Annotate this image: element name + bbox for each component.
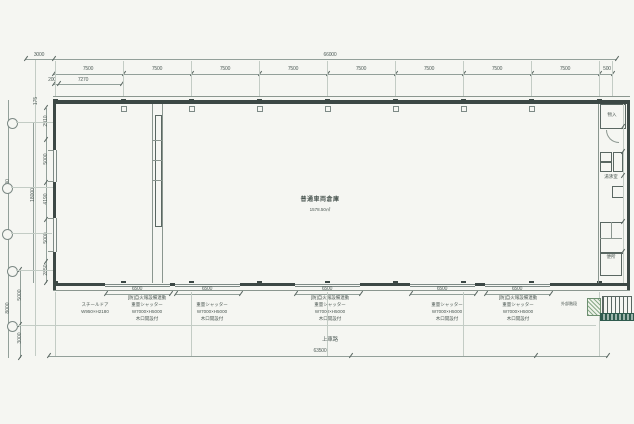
grid-bubble <box>2 229 13 240</box>
annex-partition <box>598 104 599 283</box>
partition-wall-line <box>162 104 163 283</box>
partition-shaft <box>155 115 162 227</box>
fixture <box>600 152 612 162</box>
shutter-fire-line4: 木口開設付 <box>300 315 360 322</box>
dim-left-18000: 18000 <box>30 180 36 210</box>
dim-opening-line <box>410 294 475 295</box>
column-base <box>529 106 535 112</box>
room-area: 1578.50㎡ <box>290 207 350 212</box>
dim-top-bay: 7500 <box>482 66 512 72</box>
dim-top-bay: 7500 <box>210 66 240 72</box>
dim-top-bay: 7500 <box>550 66 580 72</box>
dim-top-bays-line <box>53 74 612 75</box>
extension-line <box>55 292 56 356</box>
column <box>53 281 58 286</box>
shutter-fire-line3: W7000×H5000 <box>117 308 177 315</box>
extension-line <box>327 292 328 356</box>
window-end-tick <box>48 218 53 219</box>
shutter-fire-line3: W7000×H5000 <box>488 308 548 315</box>
column <box>461 99 466 104</box>
window-frame <box>53 150 57 182</box>
dim-left-chain-seg: 5000 <box>43 144 49 174</box>
shutter-line2: W7000×H5000 <box>417 308 477 315</box>
dim-sub-200: 200 <box>44 77 60 83</box>
column <box>257 281 262 286</box>
dim-opening: 6500 <box>192 286 222 292</box>
column-base <box>257 106 263 112</box>
column <box>189 99 194 104</box>
grid-bubble <box>2 183 13 194</box>
column <box>393 281 398 286</box>
grid-extension <box>395 61 396 96</box>
dim-tick <box>239 291 243 296</box>
dim-bottom-overall: 63500 <box>298 348 342 354</box>
shutter-fire-line3: W7000×H5000 <box>300 308 360 315</box>
shutter-fire-line2: 重量シャッター <box>300 301 360 308</box>
dim-tick <box>18 355 22 360</box>
shutter-fire-line2: 重量シャッター <box>488 301 548 308</box>
window-end-tick <box>48 251 53 252</box>
partition-rung <box>152 140 162 141</box>
dim-left-lower-5000: 5000 <box>17 280 23 310</box>
grid-extension <box>531 61 532 96</box>
column-base <box>393 106 399 112</box>
annotation-shutter-fire-1: [防]自火報設備連動 重量シャッター W7000×H5000 木口開設付 <box>117 294 177 322</box>
grid-extension <box>612 61 613 96</box>
annotation-shutter-fire-5: [防]自火報設備連動 重量シャッター W7000×H5000 木口開設付 <box>488 294 548 322</box>
dim-left-chain-seg: 5000 <box>43 223 49 253</box>
wall-right <box>627 100 630 290</box>
dim-top-bay: 7500 <box>142 66 172 72</box>
steel-door-line1: スチールドア <box>70 301 120 308</box>
grid-extension <box>327 61 328 96</box>
fixture <box>613 152 623 172</box>
eave-line <box>53 96 630 97</box>
grid-line-ext <box>16 270 53 271</box>
column <box>393 99 398 104</box>
column-base <box>461 106 467 112</box>
shutter-fire-line4: 木口開設付 <box>117 315 177 322</box>
dim-top-overall-line <box>25 59 617 60</box>
dim-opening: 6500 <box>122 286 152 292</box>
wc-partition <box>611 222 612 238</box>
dim-top-bay: 7500 <box>73 66 103 72</box>
grid-extension <box>55 61 56 96</box>
dim-opening: 6500 <box>502 286 532 292</box>
grid-extension <box>463 61 464 96</box>
dim-tick <box>549 291 553 296</box>
grid-bubble <box>7 321 18 332</box>
floor-plan-sheet: 3000 66000 7500 7500 7500 7500 7500 7500… <box>0 0 634 424</box>
grid-line-ext <box>11 187 53 188</box>
column <box>53 99 58 104</box>
shutter-line3: 木口開設付 <box>417 315 477 322</box>
wall-top <box>53 100 630 104</box>
stair-note: 外部階段 <box>552 301 586 306</box>
shutter-line1: 重量シャッター <box>417 301 477 308</box>
dim-top-right-end: 500 <box>592 66 622 72</box>
column <box>121 99 126 104</box>
dim-tick <box>474 291 478 296</box>
site-boundary-bottom-dimline <box>48 356 608 357</box>
annotation-shutter-4: 重量シャッター W7000×H5000 木口開設付 <box>417 301 477 322</box>
grid-line-ext <box>16 325 596 326</box>
grid-line-ext <box>11 233 53 234</box>
dim-top-bay: 7500 <box>346 66 376 72</box>
dim-left-chain-seg: 4190 <box>43 184 49 214</box>
dim-site-left: 3000 <box>25 52 53 58</box>
dim-tick <box>606 353 610 358</box>
exterior-stair <box>602 296 632 314</box>
door-swing-arc <box>606 130 619 143</box>
window-end-tick <box>48 150 53 151</box>
partition-rung <box>152 160 162 161</box>
dim-left-8000: 8000 <box>5 293 11 323</box>
dim-top-bay: 7500 <box>414 66 444 72</box>
grid-extension <box>599 61 600 96</box>
wc-partition <box>600 238 622 239</box>
grid-line-ext <box>16 122 53 123</box>
column-base <box>189 106 195 112</box>
dim-top-overall: 66000 <box>300 52 360 58</box>
shutter-fire-line1: [防]自火報設備連動 <box>117 294 177 301</box>
annotation-steel-door: スチールドア W950×H2180 <box>70 301 120 315</box>
column-base <box>325 106 331 112</box>
grid-extension <box>123 61 124 96</box>
dim-top-bay: 7500 <box>278 66 308 72</box>
window-frame <box>53 218 57 252</box>
dim-sub-7270: 7270 <box>68 77 98 83</box>
shutter-fire-line1: [防]自火報設備連動 <box>488 294 548 301</box>
grid-extension <box>191 61 192 96</box>
site-road-label: 上車路 <box>302 337 358 343</box>
column-base <box>121 106 127 112</box>
extension-line <box>191 292 192 356</box>
right-dim-chain <box>623 104 624 283</box>
wall-left <box>53 100 56 290</box>
window-end-tick <box>48 181 53 182</box>
partition-wall-line <box>152 104 153 283</box>
planting-hatch <box>587 298 601 316</box>
dim-tick <box>615 56 619 61</box>
column <box>325 99 330 104</box>
annex-room-lower <box>600 252 622 276</box>
shutter-fire-line1: [防]自火報設備連動 <box>300 294 360 301</box>
dim-left-chain-seg: 2910 <box>43 106 49 136</box>
room-name: 普通車両倉庫 <box>280 198 360 203</box>
dim-sub-line <box>53 84 121 85</box>
column <box>529 99 534 104</box>
annex-room-top-label: 物入 <box>601 112 623 117</box>
grid-bubble <box>7 266 18 277</box>
fixture <box>600 162 612 172</box>
dim-opening: 6500 <box>427 286 457 292</box>
column <box>257 99 262 104</box>
annotation-shutter-fire-3: [防]自火報設備連動 重量シャッター W7000×H5000 木口開設付 <box>300 294 360 322</box>
shutter-fire-line2: 重量シャッター <box>117 301 177 308</box>
dim-left-175: 175 <box>33 93 39 109</box>
partition-rung <box>152 180 162 181</box>
steel-door-line2: W950×H2180 <box>70 308 120 315</box>
grid-bubble <box>7 118 18 129</box>
dim-opening-line <box>175 294 240 295</box>
grid-extension <box>259 61 260 96</box>
extension-line <box>463 292 464 356</box>
shutter-fire-line4: 木口開設付 <box>488 315 548 322</box>
stair-landing-hatch <box>600 313 634 321</box>
